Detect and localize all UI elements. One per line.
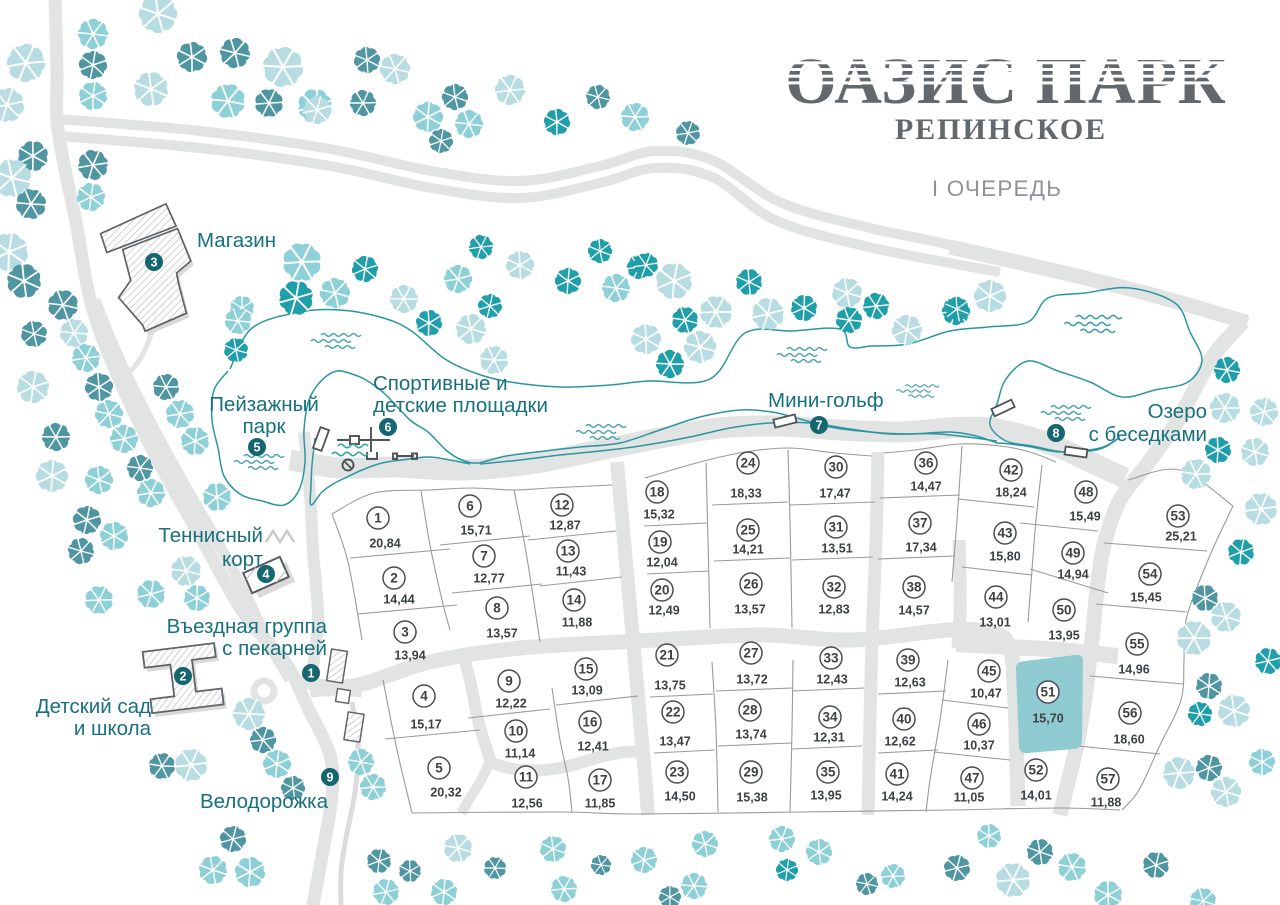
svg-text:44: 44 [988, 590, 1004, 605]
svg-text:8: 8 [493, 601, 501, 616]
svg-text:15,70: 15,70 [1032, 711, 1063, 725]
svg-text:8: 8 [1053, 427, 1060, 441]
svg-text:12,49: 12,49 [648, 603, 679, 617]
svg-text:41: 41 [889, 767, 905, 782]
svg-text:14,01: 14,01 [1020, 788, 1051, 802]
svg-text:13,94: 13,94 [394, 648, 425, 662]
svg-text:36: 36 [918, 456, 934, 471]
svg-text:43: 43 [997, 526, 1013, 541]
svg-text:12,63: 12,63 [894, 675, 925, 689]
svg-text:Детский сад: Детский сад [36, 695, 151, 718]
svg-text:28: 28 [742, 703, 758, 718]
svg-text:23: 23 [669, 765, 685, 780]
svg-text:с пекарней: с пекарней [222, 637, 327, 660]
svg-text:15: 15 [578, 662, 594, 677]
svg-text:31: 31 [828, 520, 844, 535]
svg-text:57: 57 [1100, 772, 1115, 787]
svg-text:13,51: 13,51 [821, 541, 852, 555]
svg-text:13,47: 13,47 [659, 734, 690, 748]
svg-text:10,37: 10,37 [963, 738, 994, 752]
svg-text:15,71: 15,71 [460, 523, 491, 537]
svg-text:20,84: 20,84 [369, 536, 400, 550]
svg-text:18: 18 [649, 485, 665, 500]
svg-text:25,21: 25,21 [1165, 529, 1196, 543]
svg-text:22: 22 [665, 705, 680, 720]
svg-text:1: 1 [308, 667, 315, 681]
svg-text:34: 34 [822, 710, 838, 725]
svg-text:14,24: 14,24 [881, 789, 912, 803]
svg-text:13,72: 13,72 [736, 672, 767, 686]
svg-text:Мини-гольф: Мини-гольф [768, 389, 884, 412]
svg-text:14,50: 14,50 [664, 789, 695, 803]
svg-text:24: 24 [740, 456, 756, 471]
svg-text:13: 13 [560, 544, 576, 559]
svg-text:14,47: 14,47 [910, 479, 941, 493]
svg-text:11,43: 11,43 [556, 564, 587, 578]
svg-text:40: 40 [896, 712, 911, 727]
svg-text:12,77: 12,77 [473, 571, 504, 585]
svg-text:РЕПИНСКОЕ: РЕПИНСКОЕ [895, 113, 1107, 146]
svg-text:49: 49 [1065, 546, 1080, 561]
svg-text:12: 12 [554, 498, 569, 513]
svg-text:39: 39 [900, 653, 915, 668]
svg-text:37: 37 [912, 516, 927, 531]
svg-text:1: 1 [374, 511, 382, 526]
svg-text:17,47: 17,47 [819, 486, 850, 500]
svg-text:17,34: 17,34 [905, 540, 936, 554]
svg-text:14: 14 [566, 593, 582, 608]
svg-text:15,17: 15,17 [410, 717, 441, 731]
svg-text:11,14: 11,14 [505, 746, 536, 760]
svg-text:27: 27 [743, 646, 758, 661]
svg-text:15,32: 15,32 [643, 507, 674, 521]
svg-text:3: 3 [151, 256, 158, 270]
svg-text:56: 56 [1122, 706, 1138, 721]
svg-text:15,45: 15,45 [1130, 590, 1161, 604]
svg-text:18,24: 18,24 [995, 485, 1026, 499]
svg-text:Спортивные и: Спортивные и [373, 372, 508, 395]
svg-text:46: 46 [971, 717, 987, 732]
svg-text:2: 2 [180, 670, 187, 684]
svg-text:10,47: 10,47 [970, 686, 1001, 700]
svg-text:4: 4 [420, 689, 428, 704]
svg-text:2: 2 [390, 571, 398, 586]
svg-text:10: 10 [508, 724, 523, 739]
svg-text:13,57: 13,57 [486, 626, 517, 640]
svg-text:15,38: 15,38 [736, 790, 767, 804]
svg-text:15,49: 15,49 [1069, 509, 1100, 523]
svg-text:38: 38 [906, 580, 922, 595]
svg-text:Велодорожка: Велодорожка [200, 790, 329, 813]
svg-text:54: 54 [1142, 567, 1158, 582]
svg-text:детские площадки: детские площадки [373, 394, 548, 417]
svg-text:Теннисный: Теннисный [158, 524, 263, 547]
svg-text:14,21: 14,21 [732, 542, 763, 556]
svg-text:13,95: 13,95 [810, 788, 841, 802]
svg-text:12,31: 12,31 [813, 730, 844, 744]
svg-text:13,95: 13,95 [1048, 628, 1079, 642]
svg-text:14,94: 14,94 [1057, 567, 1088, 581]
svg-text:19: 19 [652, 535, 667, 550]
svg-text:14,44: 14,44 [383, 592, 414, 606]
svg-text:12,04: 12,04 [646, 555, 677, 569]
svg-text:13,75: 13,75 [654, 678, 685, 692]
svg-text:13,09: 13,09 [571, 683, 602, 697]
svg-text:11,88: 11,88 [1091, 795, 1122, 809]
svg-text:47: 47 [964, 771, 979, 786]
svg-text:5: 5 [435, 761, 443, 776]
svg-text:42: 42 [1003, 463, 1018, 478]
svg-text:12,87: 12,87 [549, 518, 580, 532]
svg-text:9: 9 [327, 771, 334, 785]
svg-text:Пейзажный: Пейзажный [209, 393, 319, 416]
svg-text:52: 52 [1028, 763, 1043, 778]
svg-text:26: 26 [743, 577, 759, 592]
svg-text:6: 6 [466, 499, 474, 514]
svg-text:12,56: 12,56 [511, 796, 542, 810]
svg-text:51: 51 [1040, 685, 1056, 700]
svg-text:33: 33 [823, 651, 839, 666]
svg-text:35: 35 [820, 765, 836, 780]
svg-text:7: 7 [480, 549, 488, 564]
svg-text:11,05: 11,05 [954, 790, 985, 804]
svg-text:18,33: 18,33 [730, 486, 761, 500]
svg-text:17: 17 [592, 773, 607, 788]
svg-text:32: 32 [826, 580, 841, 595]
svg-text:12,62: 12,62 [884, 734, 915, 748]
svg-text:18,60: 18,60 [1113, 732, 1144, 746]
svg-text:48: 48 [1078, 485, 1094, 500]
svg-text:11,85: 11,85 [585, 796, 616, 810]
svg-text:20: 20 [654, 583, 669, 598]
svg-text:и школа: и школа [74, 717, 152, 740]
svg-text:50: 50 [1056, 603, 1071, 618]
svg-text:20,32: 20,32 [430, 785, 461, 799]
svg-text:12,22: 12,22 [495, 696, 526, 710]
svg-text:Магазин: Магазин [197, 229, 276, 252]
svg-text:14,96: 14,96 [1118, 662, 1149, 676]
svg-text:4: 4 [263, 568, 270, 582]
svg-text:парк: парк [243, 415, 287, 438]
svg-text:3: 3 [401, 625, 409, 640]
svg-text:13,74: 13,74 [735, 727, 766, 741]
svg-text:7: 7 [816, 419, 823, 433]
svg-text:с беседками: с беседками [1089, 423, 1207, 446]
svg-text:5: 5 [254, 441, 261, 455]
svg-text:12,43: 12,43 [816, 672, 847, 686]
svg-text:15,80: 15,80 [989, 549, 1020, 563]
svg-text:55: 55 [1129, 637, 1145, 652]
svg-text:корт: корт [222, 548, 264, 571]
svg-text:I ОЧЕРЕДЬ: I ОЧЕРЕДЬ [932, 176, 1062, 201]
svg-text:13,57: 13,57 [734, 602, 765, 616]
svg-text:53: 53 [1170, 509, 1186, 524]
svg-text:16: 16 [582, 715, 598, 730]
svg-text:45: 45 [981, 664, 997, 679]
svg-text:Въездная группа: Въездная группа [167, 615, 328, 638]
svg-text:11,88: 11,88 [562, 615, 593, 629]
svg-text:29: 29 [743, 765, 758, 780]
svg-text:25: 25 [740, 523, 756, 538]
svg-text:30: 30 [828, 460, 843, 475]
svg-text:14,57: 14,57 [898, 603, 929, 617]
svg-text:11: 11 [519, 770, 534, 785]
svg-text:21: 21 [659, 648, 675, 663]
svg-text:6: 6 [385, 421, 392, 435]
svg-text:12,41: 12,41 [577, 739, 608, 753]
svg-text:9: 9 [505, 674, 513, 689]
svg-text:Озеро: Озеро [1148, 400, 1207, 423]
svg-text:12,83: 12,83 [818, 602, 849, 616]
svg-text:13,01: 13,01 [979, 615, 1010, 629]
